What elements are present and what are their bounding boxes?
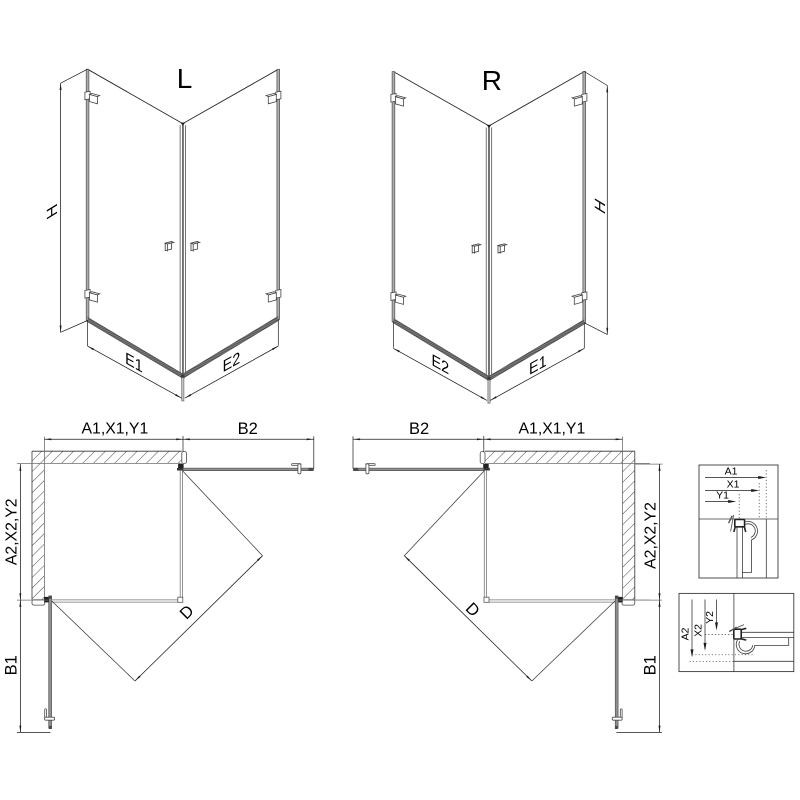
svg-text:A1: A1 [725,465,738,477]
svg-text:A2: A2 [680,627,692,640]
svg-text:Y1: Y1 [716,489,729,501]
svg-text:A1,X1,Y1: A1,X1,Y1 [519,421,586,438]
svg-text:B1: B1 [2,655,20,675]
svg-text:B1: B1 [642,655,660,675]
svg-text:R: R [482,65,502,96]
svg-text:Y2: Y2 [704,611,716,624]
svg-text:A1,X1,Y1: A1,X1,Y1 [82,421,149,438]
svg-text:A2,X2,Y2: A2,X2,Y2 [3,498,20,565]
svg-text:A2,X2,Y2: A2,X2,Y2 [643,502,660,569]
svg-text:B2: B2 [409,420,429,438]
svg-text:B2: B2 [238,420,258,438]
svg-text:X2: X2 [693,624,705,637]
svg-text:L: L [177,63,193,94]
